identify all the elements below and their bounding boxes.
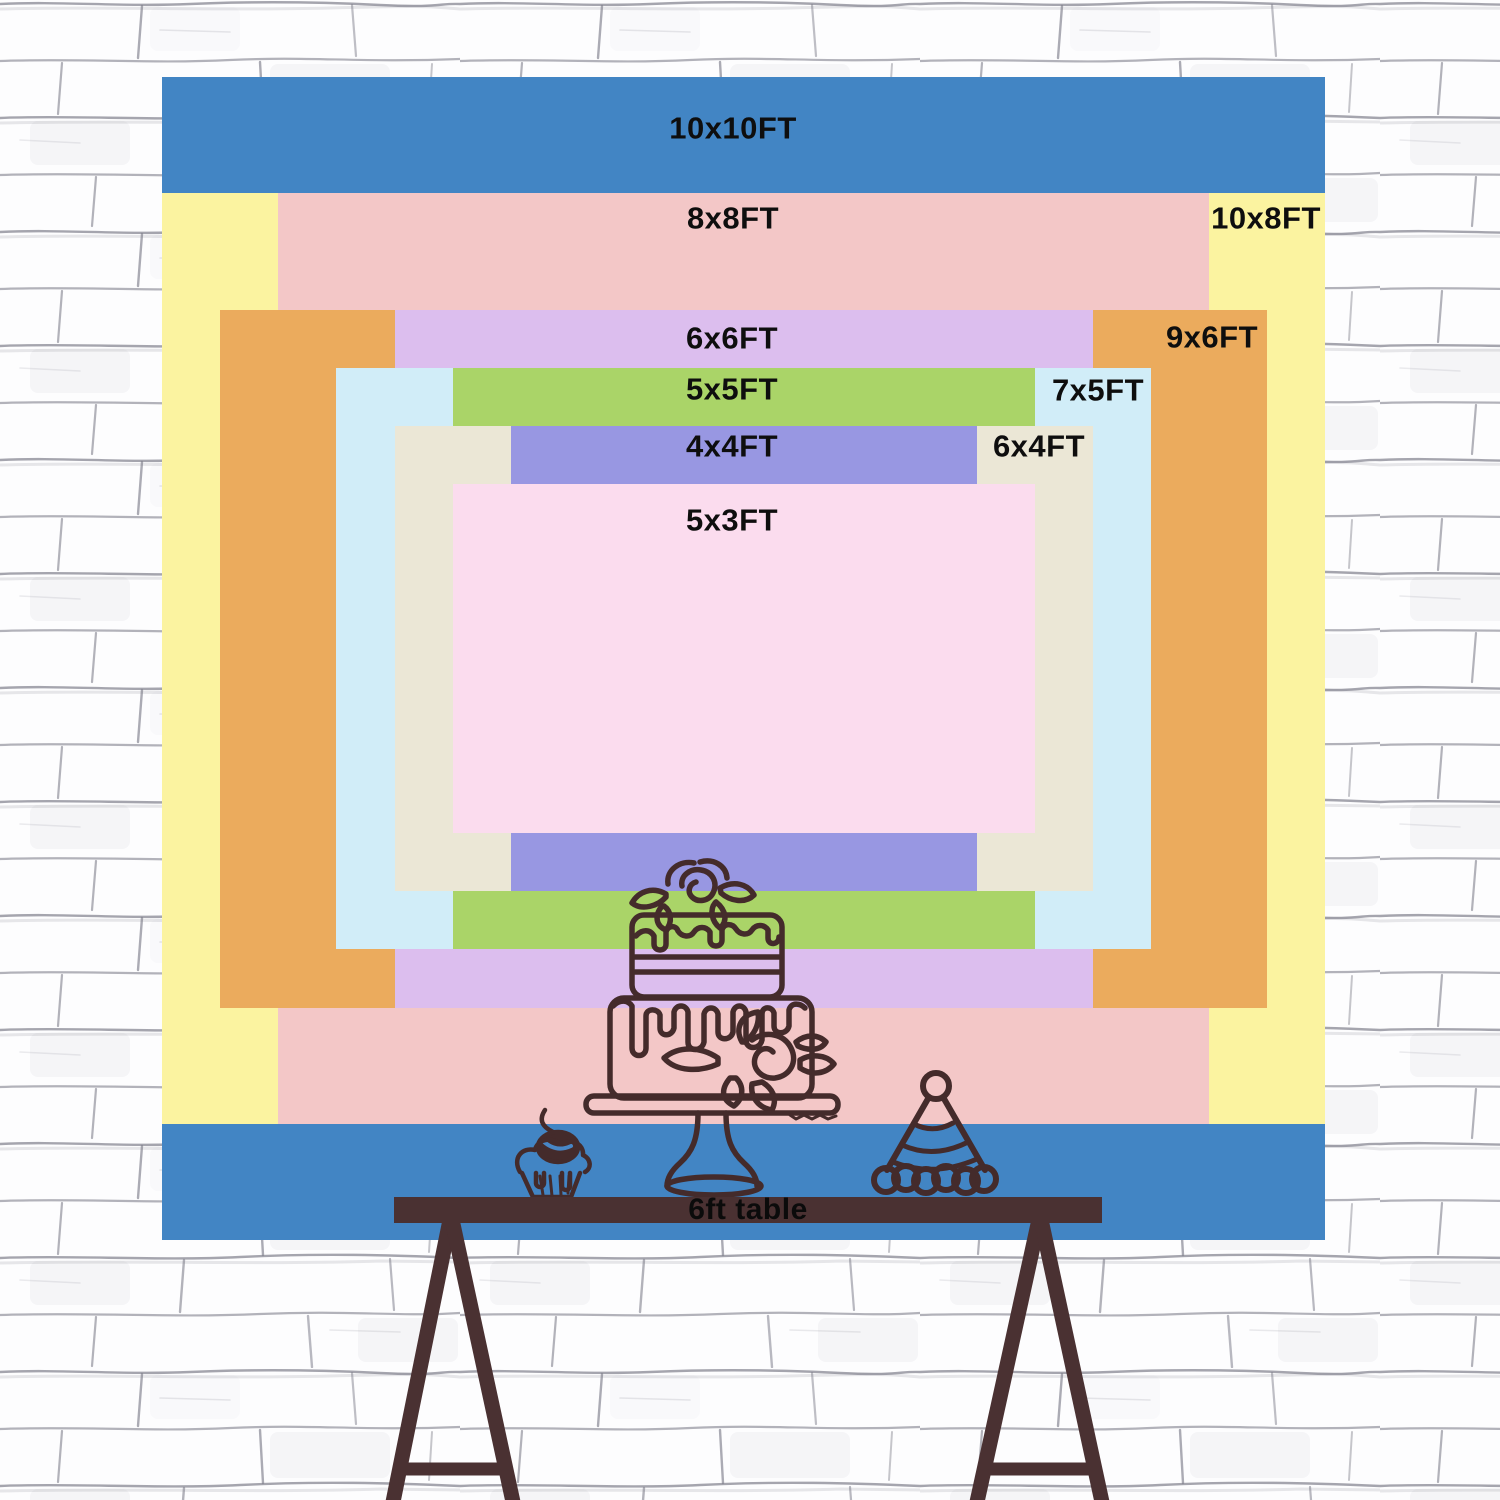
table-label: 6ft table bbox=[688, 1195, 808, 1225]
size-label-6x4ft: 6x4FT bbox=[993, 431, 1085, 462]
size-label-9x6ft: 9x6FT bbox=[1166, 322, 1258, 353]
size-label-10x8ft: 10x8FT bbox=[1211, 203, 1321, 234]
table-bar: 6ft table bbox=[394, 1197, 1102, 1223]
size-label-5x5ft: 5x5FT bbox=[686, 374, 778, 405]
backdrop-rectangles: 10x10FT10x8FT8x8FT9x6FT6x6FT7x5FT5x5FT6x… bbox=[0, 0, 1500, 1500]
size-label-8x8ft: 8x8FT bbox=[687, 203, 779, 234]
size-label-5x3ft: 5x3FT bbox=[686, 505, 778, 536]
size-label-10x10ft: 10x10FT bbox=[669, 113, 797, 144]
size-label-6x6ft: 6x6FT bbox=[686, 323, 778, 354]
size-label-7x5ft: 7x5FT bbox=[1052, 375, 1144, 406]
backdrop-size-chart: 10x10FT10x8FT8x8FT9x6FT6x6FT7x5FT5x5FT6x… bbox=[0, 0, 1500, 1500]
size-label-4x4ft: 4x4FT bbox=[686, 431, 778, 462]
